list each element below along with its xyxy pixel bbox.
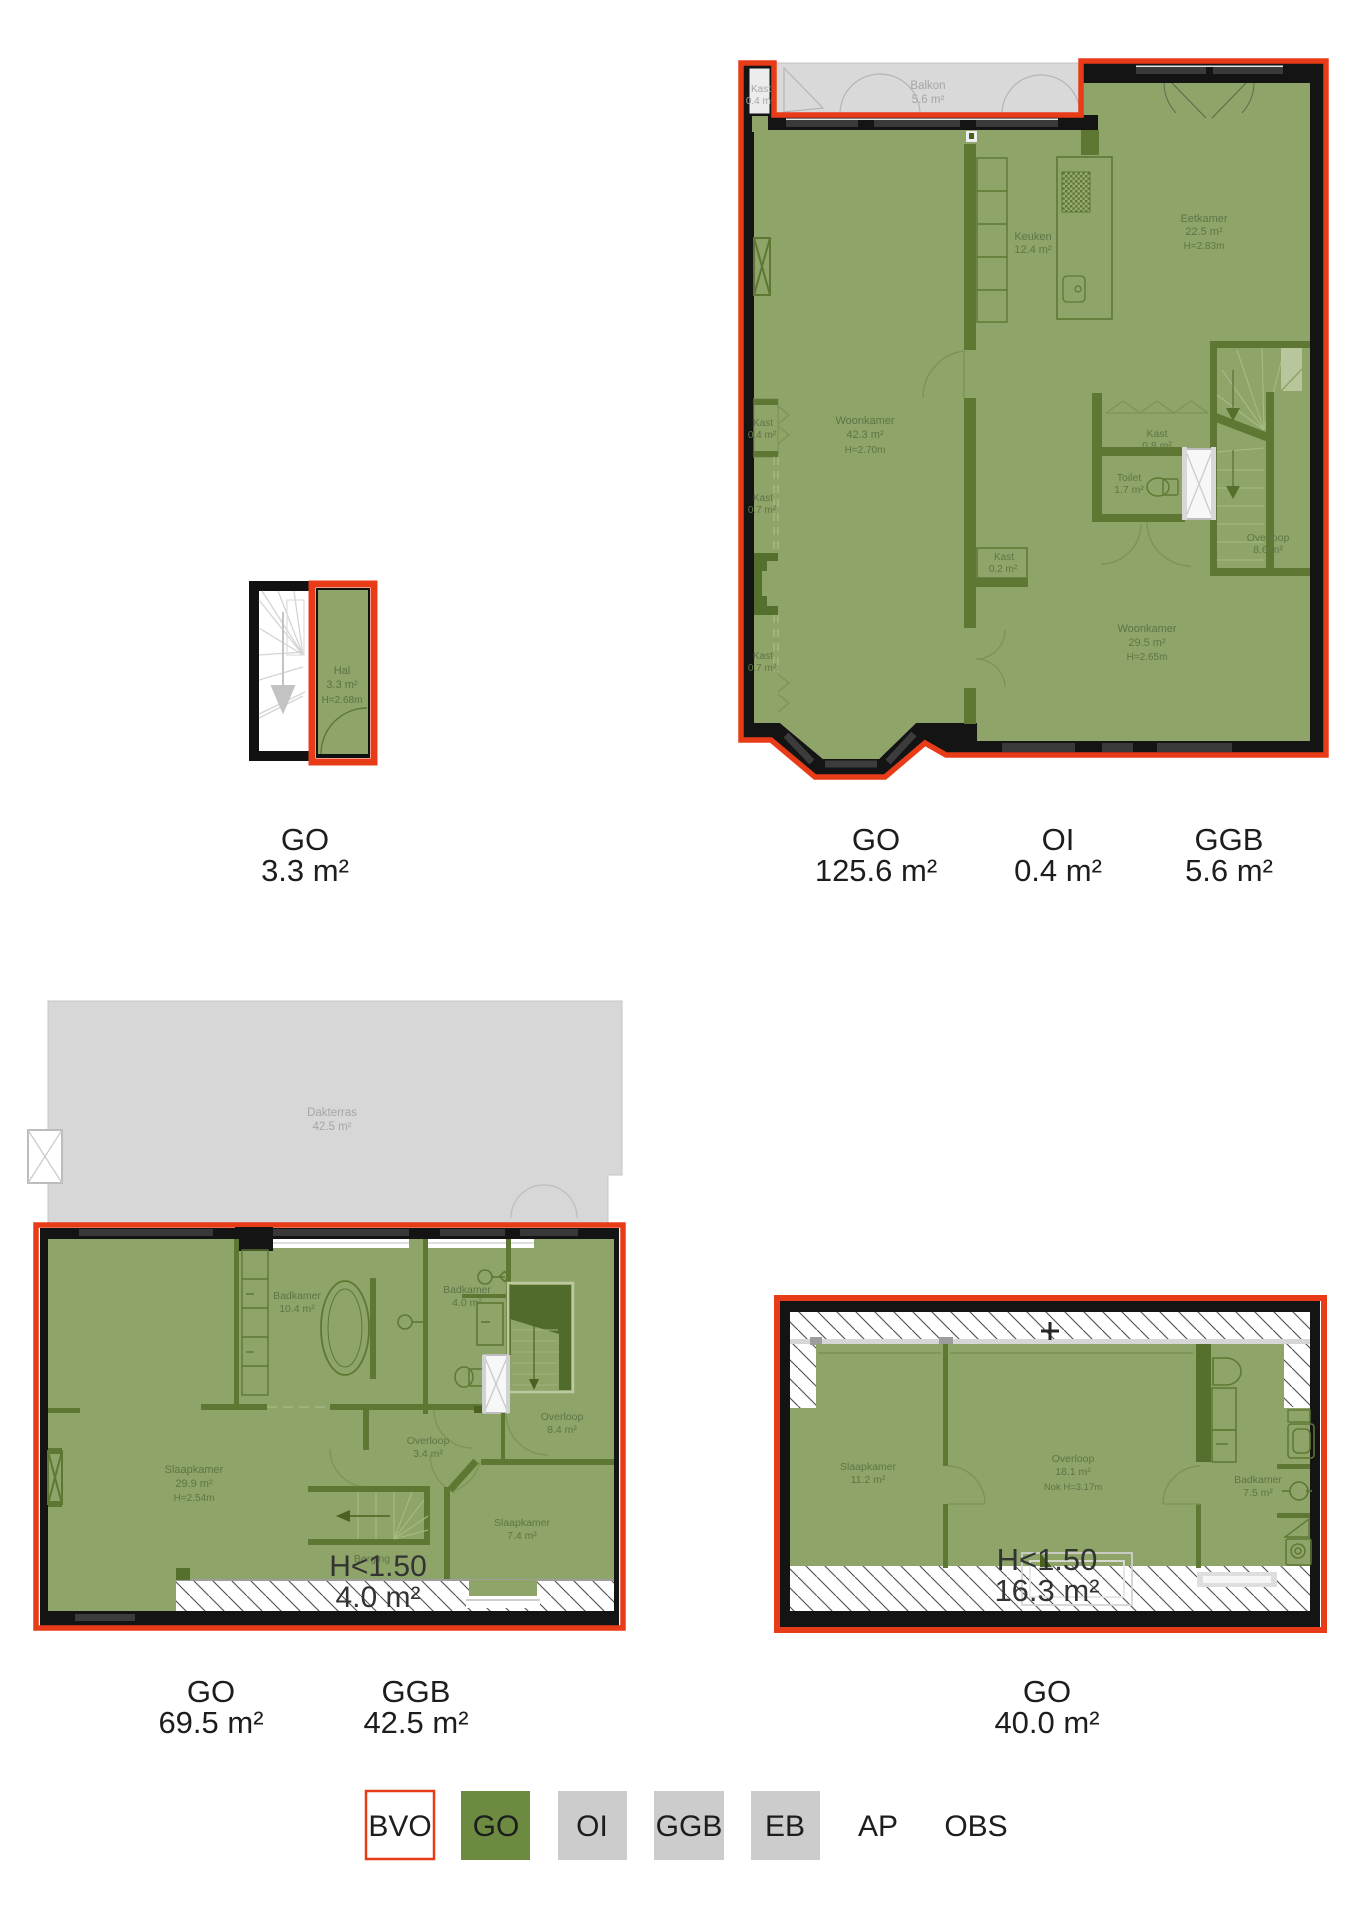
svg-text:Woonkamer: Woonkamer — [835, 415, 894, 427]
svg-text:42.3 m²: 42.3 m² — [846, 429, 884, 441]
svg-text:GO: GO — [281, 822, 329, 857]
svg-text:0.7 m²: 0.7 m² — [748, 663, 777, 674]
svg-text:OI: OI — [576, 1810, 608, 1843]
svg-text:29.5 m²: 29.5 m² — [1128, 637, 1166, 649]
svg-text:OBS: OBS — [944, 1810, 1007, 1843]
svg-text:Badkamer: Badkamer — [273, 1290, 321, 1302]
svg-text:42.5 m²: 42.5 m² — [313, 1121, 352, 1133]
svg-text:Kast: Kast — [753, 651, 773, 662]
svg-text:BVO: BVO — [368, 1810, 431, 1843]
svg-text:Kast: Kast — [994, 552, 1014, 563]
svg-text:Badkamer: Badkamer — [1234, 1474, 1282, 1486]
svg-text:Slaapkamer: Slaapkamer — [165, 1464, 224, 1476]
svg-text:8.4 m²: 8.4 m² — [547, 1424, 577, 1436]
svg-text:H=2.83m: H=2.83m — [1184, 241, 1225, 252]
svg-text:22.5 m²: 22.5 m² — [1185, 226, 1223, 238]
svg-text:GGB: GGB — [656, 1810, 723, 1843]
svg-text:H=2.68m: H=2.68m — [322, 695, 363, 706]
svg-text:69.5 m²: 69.5 m² — [158, 1705, 263, 1740]
svg-text:Eetkamer: Eetkamer — [1180, 213, 1227, 225]
svg-text:GO: GO — [187, 1674, 235, 1709]
svg-text:H=2.70m: H=2.70m — [845, 445, 886, 456]
svg-text:8.6 m²: 8.6 m² — [1253, 544, 1283, 556]
svg-text:Overloop: Overloop — [541, 1411, 584, 1423]
svg-text:Slaapkamer: Slaapkamer — [840, 1461, 897, 1473]
svg-text:Kast: Kast — [753, 493, 773, 504]
svg-text:EB: EB — [765, 1810, 805, 1843]
svg-text:AP: AP — [858, 1810, 898, 1843]
svg-text:Nok H=3.17m: Nok H=3.17m — [1044, 1482, 1102, 1493]
svg-text:40.0 m²: 40.0 m² — [994, 1705, 1099, 1740]
svg-text:Kast: Kast — [751, 84, 771, 95]
svg-text:7.4 m²: 7.4 m² — [507, 1530, 537, 1542]
svg-text:125.6 m²: 125.6 m² — [815, 853, 937, 888]
svg-text:Balkon: Balkon — [910, 80, 945, 92]
svg-text:3.4 m²: 3.4 m² — [413, 1448, 443, 1460]
svg-text:1.7 m²: 1.7 m² — [1114, 484, 1144, 496]
svg-text:GO: GO — [852, 822, 900, 857]
svg-text:Kast: Kast — [1146, 428, 1167, 440]
svg-text:Dakterras: Dakterras — [307, 1107, 357, 1119]
svg-text:GGB: GGB — [1195, 822, 1264, 857]
svg-text:GO: GO — [473, 1810, 520, 1843]
svg-text:0.4 m²: 0.4 m² — [1014, 853, 1102, 888]
svg-text:H=2.54m: H=2.54m — [174, 1493, 215, 1504]
svg-text:H<1.50: H<1.50 — [997, 1542, 1098, 1577]
svg-text:Slaapkamer: Slaapkamer — [494, 1517, 551, 1529]
svg-text:Overloop: Overloop — [407, 1435, 450, 1447]
svg-text:H<1.50: H<1.50 — [329, 1550, 427, 1583]
svg-text:Keuken: Keuken — [1014, 231, 1051, 243]
svg-text:0.7 m²: 0.7 m² — [748, 505, 777, 516]
svg-text:7.5 m²: 7.5 m² — [1243, 1487, 1273, 1499]
svg-text:5.6 m²: 5.6 m² — [1185, 853, 1273, 888]
svg-text:0.4 m²: 0.4 m² — [748, 430, 777, 441]
svg-text:4.0 m²: 4.0 m² — [335, 1581, 420, 1614]
svg-text:Kast: Kast — [753, 418, 773, 429]
svg-text:18.1 m²: 18.1 m² — [1055, 1466, 1091, 1478]
svg-text:11.2 m²: 11.2 m² — [851, 1474, 886, 1486]
svg-text:3.3 m²: 3.3 m² — [326, 679, 358, 691]
svg-text:5.6 m²: 5.6 m² — [912, 94, 945, 106]
svg-text:Woonkamer: Woonkamer — [1117, 623, 1176, 635]
svg-text:GO: GO — [1023, 1674, 1071, 1709]
svg-text:OI: OI — [1042, 822, 1075, 857]
svg-text:Toilet: Toilet — [1117, 472, 1142, 484]
svg-text:GGB: GGB — [382, 1674, 451, 1709]
svg-text:3.3 m²: 3.3 m² — [261, 853, 349, 888]
svg-text:0.8 m²: 0.8 m² — [1142, 440, 1172, 452]
svg-text:H=2.65m: H=2.65m — [1127, 652, 1168, 663]
svg-text:29.9 m²: 29.9 m² — [175, 1478, 213, 1490]
svg-text:Overloop: Overloop — [1247, 532, 1290, 544]
svg-text:10.4 m²: 10.4 m² — [279, 1303, 315, 1315]
svg-text:0.4 m²: 0.4 m² — [746, 96, 775, 107]
svg-text:Overloop: Overloop — [1052, 1453, 1095, 1465]
svg-text:Hal: Hal — [334, 665, 351, 677]
svg-text:12.4 m²: 12.4 m² — [1014, 244, 1052, 256]
svg-text:16.3 m²: 16.3 m² — [994, 1573, 1099, 1608]
svg-text:42.5 m²: 42.5 m² — [363, 1705, 468, 1740]
svg-text:0.2 m²: 0.2 m² — [989, 564, 1018, 575]
